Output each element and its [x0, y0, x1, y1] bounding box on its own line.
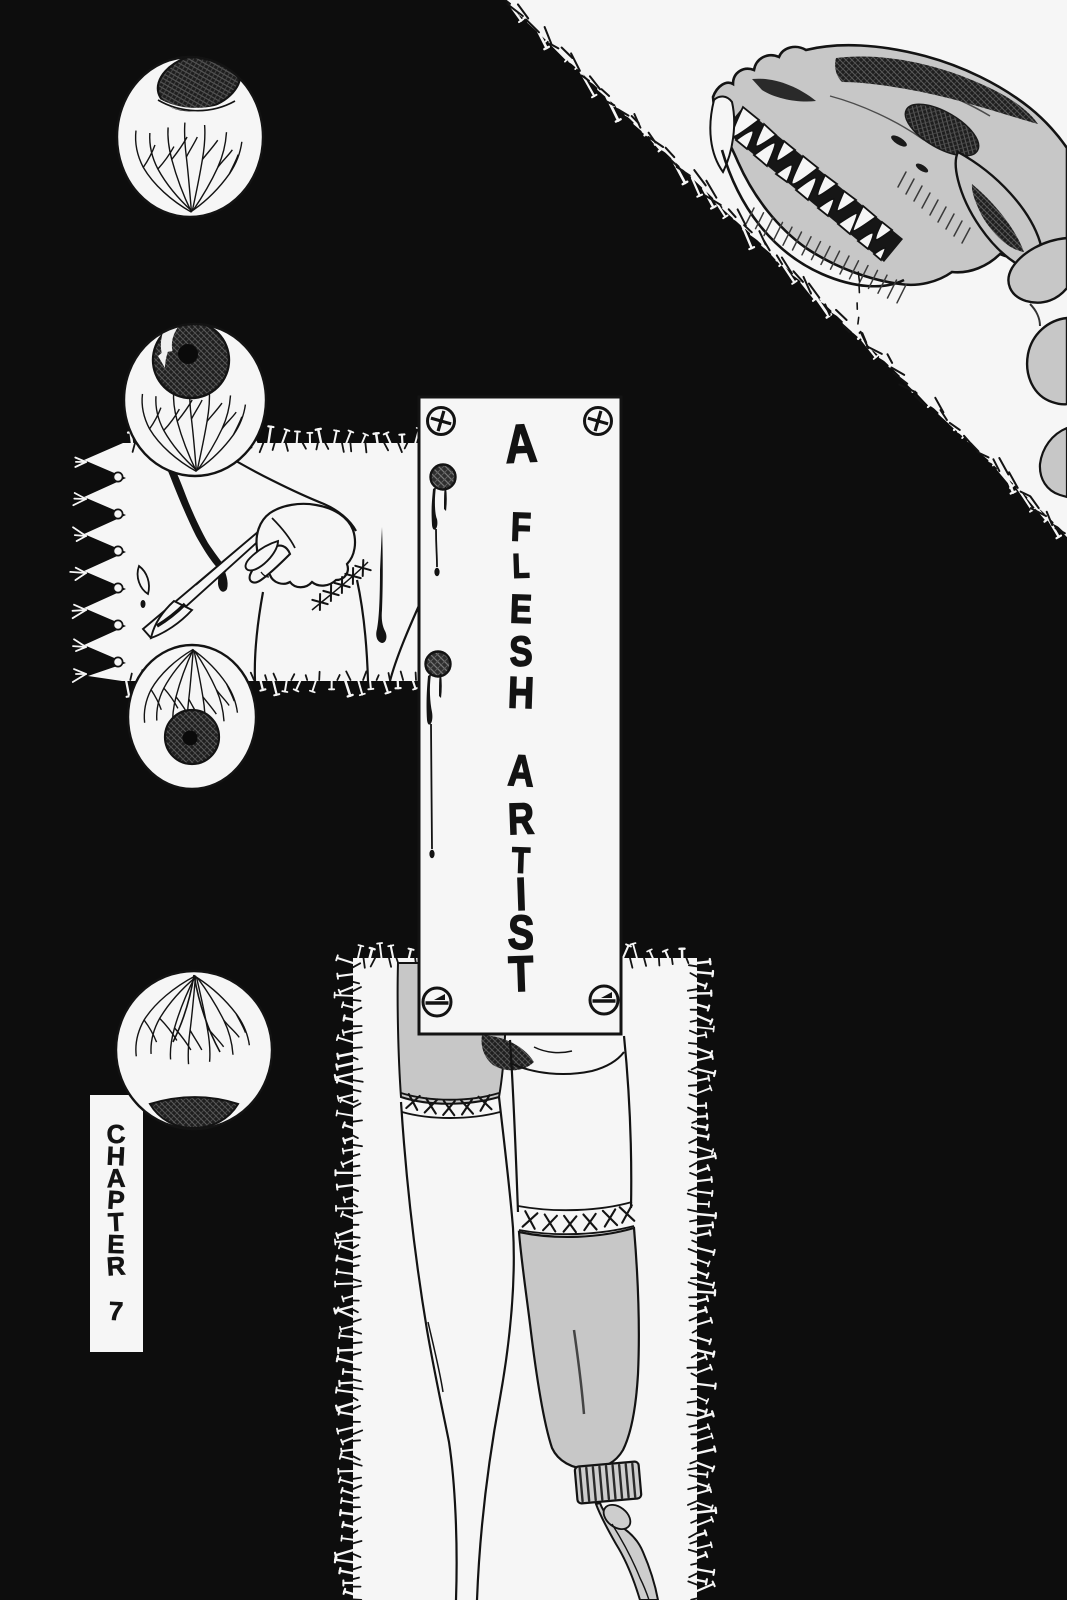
svg-text:7: 7 [108, 1296, 124, 1327]
svg-text:F: F [510, 504, 532, 550]
svg-text:L: L [512, 547, 530, 586]
svg-text:T: T [508, 946, 535, 1003]
svg-text:A: A [507, 746, 536, 797]
svg-text:E: E [509, 586, 532, 632]
svg-text:A: A [503, 413, 538, 475]
svg-text:R: R [507, 794, 535, 844]
svg-text:H: H [507, 668, 535, 718]
svg-text:R: R [106, 1250, 127, 1281]
